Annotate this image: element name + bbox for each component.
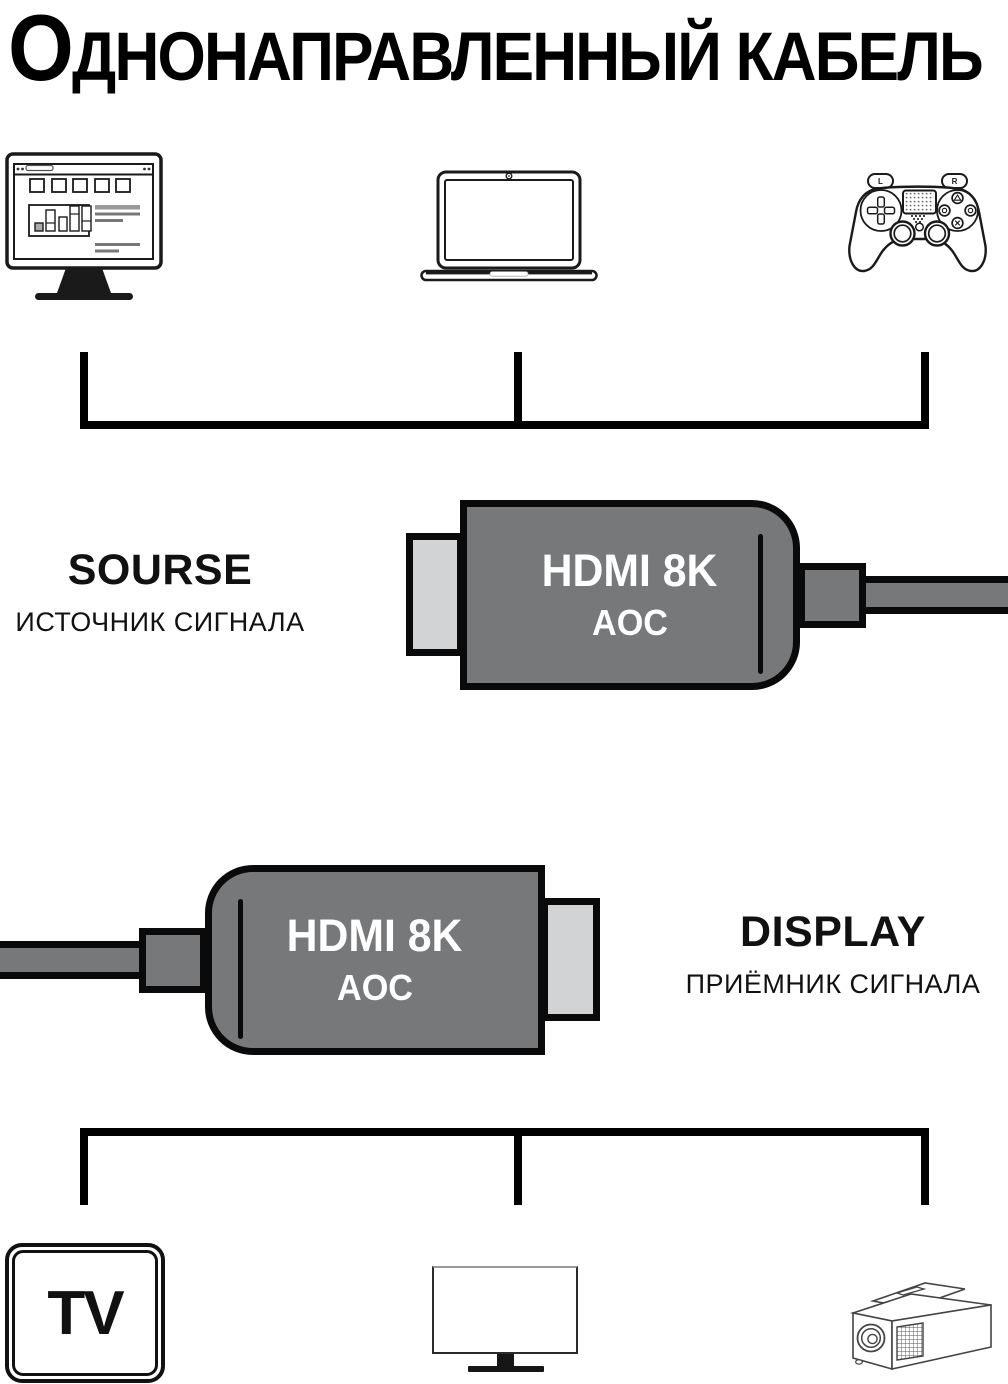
source-label-block: SOURSE ИСТОЧНИК СИГНАЛА — [2, 546, 318, 637]
connector-groove-line — [238, 899, 243, 1039]
projector-graphic — [845, 1263, 997, 1377]
connector-body: HDMI 8K AOC — [205, 865, 545, 1055]
bracket-middle-line — [514, 1136, 522, 1205]
monitor-screen — [432, 1266, 578, 1354]
cable-wire — [0, 941, 147, 979]
cable-wire — [860, 576, 1008, 614]
laptop-graphic — [420, 167, 598, 285]
aoc-label: AOC — [592, 603, 668, 643]
hdmi-8k-label: HDMI 8K — [542, 547, 718, 595]
vent-grille — [897, 1323, 923, 1360]
gamepad-icon: L R — [845, 172, 990, 280]
projector-icon — [845, 1263, 997, 1377]
strain-relief — [139, 928, 207, 993]
desktop-computer-icon — [5, 150, 163, 302]
tv-screen: TV — [12, 1250, 158, 1376]
source-label: SOURSE — [2, 546, 318, 594]
left-bumper-label: L — [878, 177, 883, 186]
gamepad-graphic: L R — [845, 172, 990, 280]
source-devices-bracket — [80, 352, 929, 429]
tv-icon: TV — [5, 1243, 165, 1383]
monitor-icon — [432, 1266, 578, 1372]
tv-label: TV — [47, 1278, 122, 1349]
right-bumper-label: R — [952, 177, 958, 186]
source-sublabel: ИСТОЧНИК СИГНАЛА — [2, 607, 318, 637]
strain-relief — [798, 563, 866, 628]
display-sublabel: ПРИЁМНИК СИГНАЛА — [660, 969, 1006, 999]
display-label: DISPLAY — [660, 908, 1006, 956]
aoc-label: AOC — [337, 968, 413, 1008]
monitor-stand — [57, 268, 111, 293]
display-devices-bracket — [80, 1128, 929, 1205]
monitor-stand-base — [468, 1366, 544, 1372]
bracket-middle-line — [514, 352, 522, 421]
desktop-computer-graphic — [5, 150, 163, 302]
hdmi-cable-infographic: Однонаправленный кабель — [0, 0, 1008, 1384]
page-title: Однонаправленный кабель — [8, 0, 982, 105]
hdmi-plug-tip — [406, 533, 464, 656]
display-label-block: DISPLAY ПРИЁМНИК СИГНАЛА — [660, 908, 1006, 999]
hdmi-8k-label: HDMI 8K — [287, 912, 463, 960]
laptop-icon — [420, 167, 598, 285]
connector-body: HDMI 8K AOC — [460, 500, 800, 690]
connector-groove-line — [758, 534, 763, 674]
hdmi-plug-tip — [541, 898, 600, 1021]
